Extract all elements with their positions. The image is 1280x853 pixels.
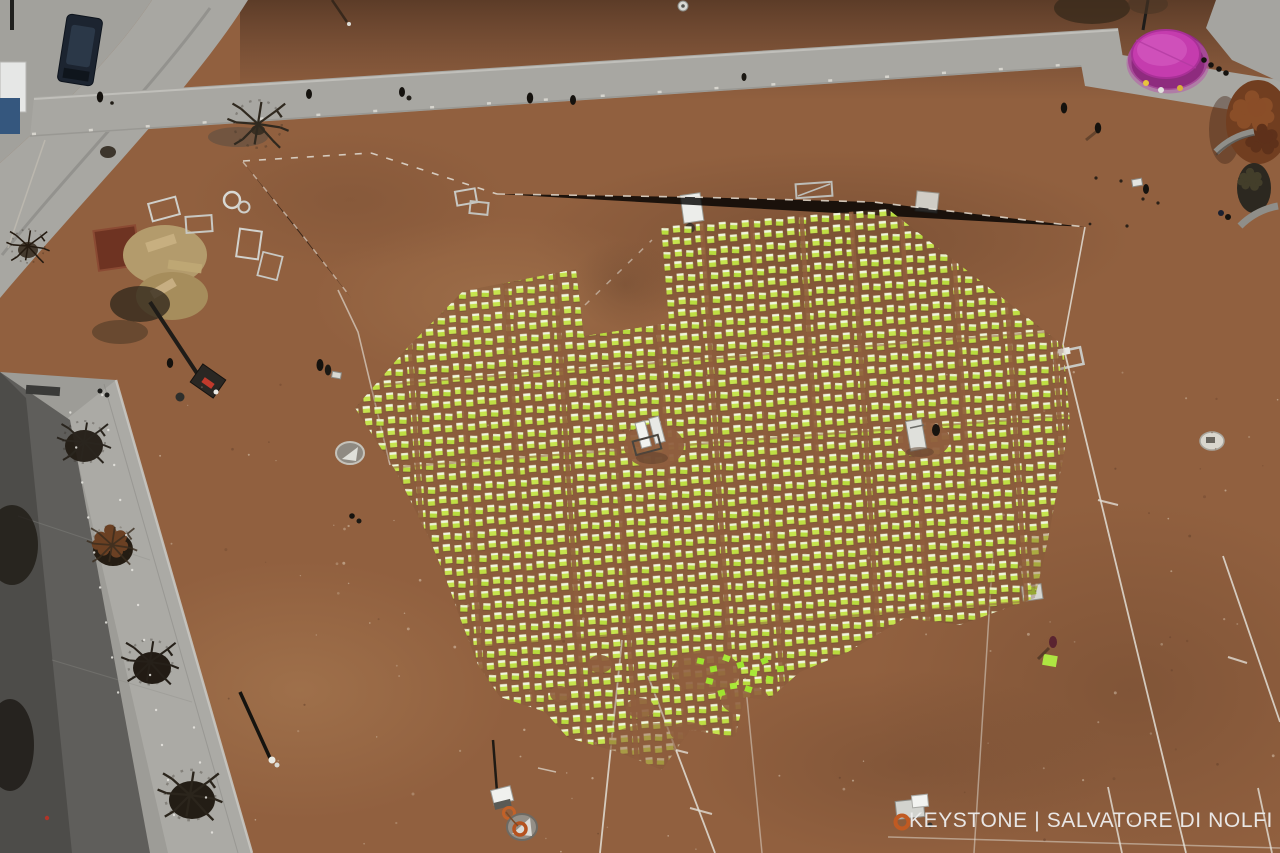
gravel-speck	[159, 455, 161, 457]
gravel-speck	[1082, 779, 1084, 781]
gravel-speck	[1160, 643, 1163, 646]
gravel-speck	[1223, 618, 1225, 620]
gravel-speck	[459, 750, 461, 752]
gravel-speck	[303, 704, 305, 706]
pavement-stud	[75, 446, 77, 448]
pedestrian	[98, 389, 103, 394]
pedestrian	[570, 95, 576, 105]
grid-clearing	[550, 686, 570, 702]
pavement-stud	[93, 551, 95, 553]
gravel-speck	[453, 646, 456, 649]
gravel-speck	[1073, 371, 1075, 373]
gravel-speck	[571, 798, 572, 799]
gravel-speck	[363, 843, 365, 845]
bird	[1089, 223, 1092, 226]
carousel-decor-dot	[1143, 80, 1149, 86]
lamp-head-top	[347, 22, 351, 26]
gravel-speck	[369, 622, 371, 624]
gravel-speck	[1114, 468, 1116, 470]
gravel-speck	[336, 562, 339, 565]
pavement-stud	[113, 464, 115, 466]
gravel-speck	[337, 592, 340, 595]
pedestrian	[306, 89, 312, 99]
pedestrian	[399, 87, 405, 97]
pedestrian-stroller	[407, 96, 412, 101]
pavement-stud	[101, 394, 103, 396]
carousel-decor-dot	[1158, 87, 1164, 93]
loose-note	[750, 670, 758, 677]
gravel-speck	[778, 775, 780, 777]
gravel-speck	[1049, 621, 1051, 623]
gravel-speck	[300, 575, 301, 576]
gravel-speck	[989, 650, 991, 652]
pedestrian	[1225, 214, 1231, 220]
stroller	[1132, 178, 1143, 187]
gravel-speck	[566, 772, 568, 774]
kiosk-blue-side	[0, 98, 20, 134]
gravel-speck	[523, 729, 525, 731]
gravel-speck	[378, 618, 380, 620]
carousel-roof-highlight	[1137, 34, 1187, 66]
gravel-speck	[1114, 691, 1117, 694]
pedestrian	[349, 513, 355, 519]
pedestrian	[167, 358, 173, 368]
pavement-stud	[167, 779, 169, 781]
gravel-speck	[396, 665, 398, 667]
pedestrian	[742, 73, 747, 81]
gravel-speck	[1186, 640, 1188, 642]
gravel-speck	[1170, 570, 1172, 572]
photo-canvas	[0, 0, 1280, 853]
gravel-speck	[412, 793, 415, 796]
gravel-speck	[201, 386, 203, 388]
gravel-speck	[1203, 495, 1206, 498]
pedestrian	[357, 519, 362, 524]
gravel-speck	[187, 405, 188, 406]
pavement-stud	[131, 569, 133, 571]
pedestrian	[325, 365, 331, 376]
gravel-speck	[376, 736, 377, 737]
bird	[1094, 176, 1097, 179]
gravel-speck	[347, 525, 349, 527]
gravel-speck	[1224, 489, 1226, 491]
pedestrian	[1201, 57, 1207, 63]
loose-note	[777, 666, 785, 673]
gravel-speck	[1043, 767, 1045, 769]
worker-red-jacket	[1049, 636, 1057, 648]
grid-clearing	[626, 698, 654, 718]
gravel-speck	[228, 698, 230, 700]
gravel-speck	[1277, 399, 1279, 401]
gravel-speck	[852, 780, 854, 782]
bird	[1141, 197, 1144, 200]
gravel-speck	[348, 583, 350, 585]
gravel-speck	[1171, 669, 1173, 671]
gravel-speck	[1074, 641, 1076, 643]
pedestrian	[1143, 184, 1149, 194]
cart-shadow	[906, 447, 934, 457]
pedestrian	[105, 393, 110, 398]
gravel-speck	[316, 634, 317, 635]
gravel-speck	[964, 792, 966, 794]
pavement-stud	[69, 411, 71, 413]
gravel-speck	[560, 851, 562, 853]
pavement-stud	[111, 656, 113, 658]
service-cart-top	[911, 794, 928, 808]
gravel-speck	[1169, 636, 1171, 638]
gravel-speck	[1188, 535, 1191, 538]
gravel-speck	[1122, 372, 1124, 374]
pavement-stud	[193, 726, 195, 728]
tree-bed	[100, 146, 116, 158]
pavement-stud	[81, 481, 83, 483]
pavement-stud	[87, 516, 89, 518]
pavement-stud	[119, 499, 121, 501]
gravel-speck	[925, 633, 927, 635]
worker-figure	[932, 424, 940, 436]
loose-note	[730, 682, 738, 689]
pavement-stud	[105, 621, 107, 623]
pedestrian	[1223, 70, 1229, 76]
hand-trolley	[332, 371, 342, 378]
bird	[1125, 224, 1128, 227]
gravel-speck	[667, 835, 669, 837]
pedestrian	[1061, 103, 1067, 114]
pavement-stud	[211, 831, 213, 833]
loose-note	[766, 676, 774, 683]
pavement-stud	[107, 429, 109, 431]
gravel-speck	[419, 579, 422, 582]
pavement-stud	[161, 744, 163, 746]
bird	[1119, 179, 1122, 182]
gravel-speck	[1215, 398, 1217, 400]
promenade-figure	[176, 393, 185, 402]
cart-shadow	[636, 452, 668, 464]
gravel-speck	[248, 454, 250, 456]
pavement-stud	[125, 534, 127, 536]
gravel-speck	[404, 613, 406, 615]
gravel-speck	[843, 788, 846, 791]
pavement-stud	[205, 796, 207, 798]
carousel-decor-dot	[1177, 85, 1183, 91]
trailer-light	[214, 390, 219, 395]
gravel-speck	[695, 848, 697, 850]
gravel-speck	[607, 827, 609, 829]
pedestrian	[527, 93, 533, 104]
gravel-speck	[1211, 432, 1212, 433]
gravel-speck	[1200, 468, 1202, 470]
gravel-speck	[279, 384, 281, 386]
gravel-speck	[231, 448, 234, 451]
gravel-speck	[398, 675, 400, 677]
pedestrian	[1208, 62, 1214, 68]
gravel-speck	[1262, 465, 1263, 466]
gravel-speck	[275, 460, 276, 461]
pavement-stud	[173, 814, 175, 816]
gravel-speck	[333, 525, 334, 526]
pole-top-left	[10, 0, 14, 30]
gravel-speck	[1236, 623, 1238, 625]
pavement-stud	[143, 639, 145, 641]
gravel-speck	[1215, 448, 1217, 450]
gravel-speck	[1027, 633, 1030, 636]
pedestrian	[1218, 210, 1224, 216]
pedestrian	[97, 92, 103, 103]
pavement-stud	[99, 586, 101, 588]
gravel-speck	[1175, 748, 1177, 750]
gravel-speck	[545, 838, 546, 839]
gravel-speck	[1248, 436, 1250, 438]
gravel-speck	[265, 562, 266, 563]
pavement-stud	[137, 604, 139, 606]
gravel-speck	[343, 528, 346, 531]
gravel-speck	[1272, 754, 1275, 757]
gravel-speck	[1043, 838, 1046, 841]
gravel-speck	[1167, 518, 1169, 520]
gravel-speck	[1113, 777, 1116, 780]
gravel-speck	[224, 548, 227, 551]
gravel-speck	[987, 742, 988, 743]
manhole-center	[681, 4, 685, 8]
marker-disc-label	[1206, 437, 1215, 443]
gravel-speck	[591, 777, 593, 779]
pavement-stud	[117, 691, 119, 693]
grid-clearing	[588, 655, 612, 673]
gravel-speck	[255, 819, 257, 821]
gravel-speck	[1185, 397, 1187, 399]
pavement-stud	[199, 761, 201, 763]
gravel-speck	[839, 777, 841, 779]
gravel-speck	[268, 441, 270, 443]
gravel-speck	[407, 627, 410, 630]
gravel-speck	[171, 543, 173, 545]
dog	[110, 101, 114, 105]
gravel-speck	[297, 730, 299, 732]
gravel-speck	[1216, 763, 1219, 766]
gravel-speck	[520, 756, 522, 758]
gravel-speck	[395, 822, 397, 824]
gravel-speck	[597, 833, 599, 835]
pavement-stud	[155, 709, 157, 711]
gravel-speck	[393, 520, 394, 521]
loose-note	[710, 665, 718, 672]
pavement-stud	[149, 674, 151, 676]
gravel-speck	[1148, 512, 1150, 514]
lamp-head	[275, 763, 280, 768]
aerial-photo: KEYSTONE | SALVATORE DI NOLFI	[0, 0, 1280, 853]
lamp-head	[269, 757, 276, 764]
gravel-speck	[1097, 721, 1099, 723]
gravel-speck	[863, 760, 864, 761]
bird	[1156, 201, 1159, 204]
watermark-text: KEYSTONE | SALVATORE DI NOLFI	[909, 809, 1273, 833]
red-object	[45, 816, 49, 820]
debris-patch	[92, 320, 148, 344]
gravel-speck	[277, 760, 279, 762]
pedestrian	[317, 359, 324, 371]
gravel-speck	[1150, 732, 1152, 734]
gravel-speck	[342, 562, 345, 565]
pedestrian	[1216, 66, 1222, 72]
